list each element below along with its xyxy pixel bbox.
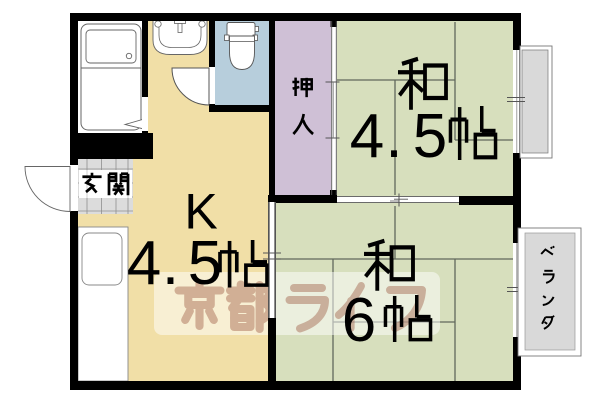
svg-text:5: 5: [413, 102, 447, 171]
svg-text:.: .: [385, 102, 402, 171]
svg-text:4: 4: [127, 229, 161, 298]
svg-text:5: 5: [188, 229, 222, 298]
svg-text:.: .: [162, 229, 179, 298]
svg-text:4: 4: [350, 102, 384, 171]
svg-text:6: 6: [342, 286, 376, 355]
